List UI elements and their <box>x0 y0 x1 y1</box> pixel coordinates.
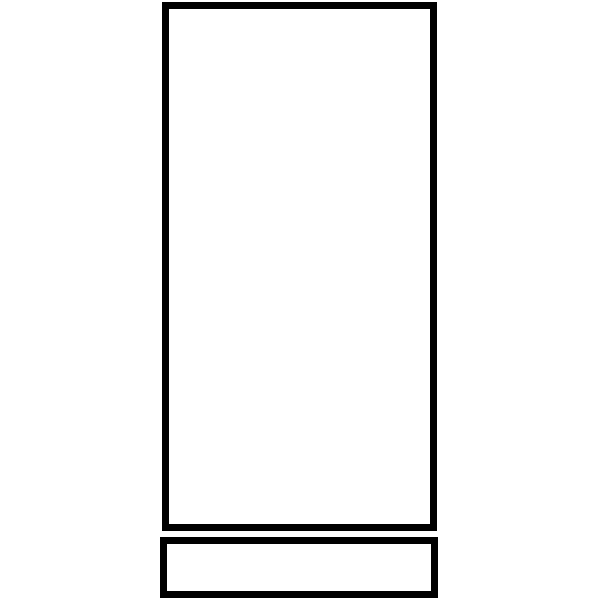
base-rectangle-outline <box>160 537 438 598</box>
tall-rectangle-outline <box>162 2 437 531</box>
drawing-canvas <box>0 0 600 600</box>
